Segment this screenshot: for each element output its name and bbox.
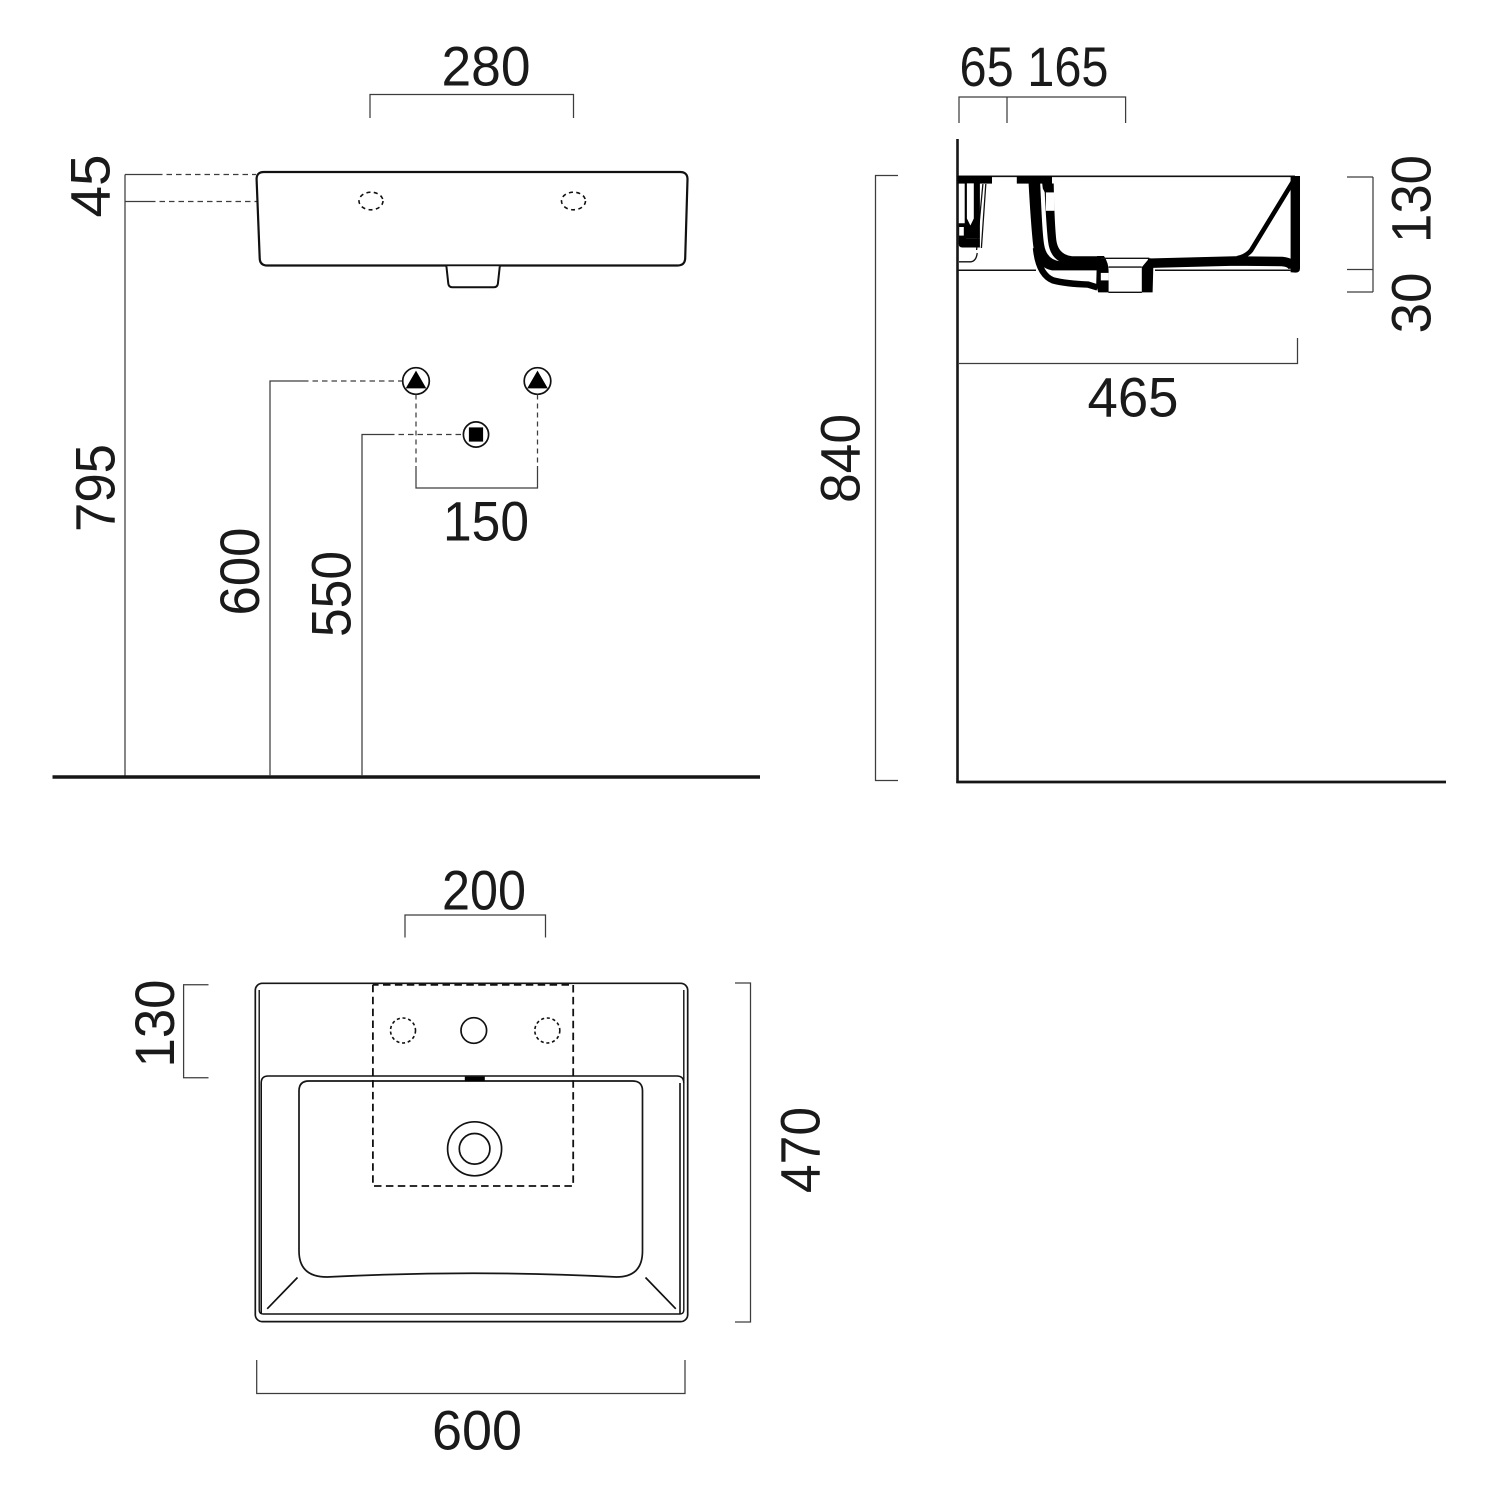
svg-text:840: 840 bbox=[809, 414, 872, 503]
svg-text:600: 600 bbox=[208, 528, 271, 616]
svg-text:200: 200 bbox=[442, 859, 526, 922]
svg-text:795: 795 bbox=[64, 444, 127, 532]
svg-text:280: 280 bbox=[442, 35, 531, 98]
svg-text:30: 30 bbox=[1380, 273, 1443, 334]
svg-text:65 165: 65 165 bbox=[960, 35, 1109, 98]
svg-text:470: 470 bbox=[769, 1107, 832, 1193]
svg-text:45: 45 bbox=[59, 155, 122, 218]
svg-text:130: 130 bbox=[123, 980, 186, 1068]
svg-text:550: 550 bbox=[300, 551, 363, 637]
svg-text:465: 465 bbox=[1088, 366, 1179, 429]
svg-text:600: 600 bbox=[432, 1399, 522, 1462]
svg-text:150: 150 bbox=[443, 490, 529, 553]
svg-text:130: 130 bbox=[1380, 155, 1443, 243]
